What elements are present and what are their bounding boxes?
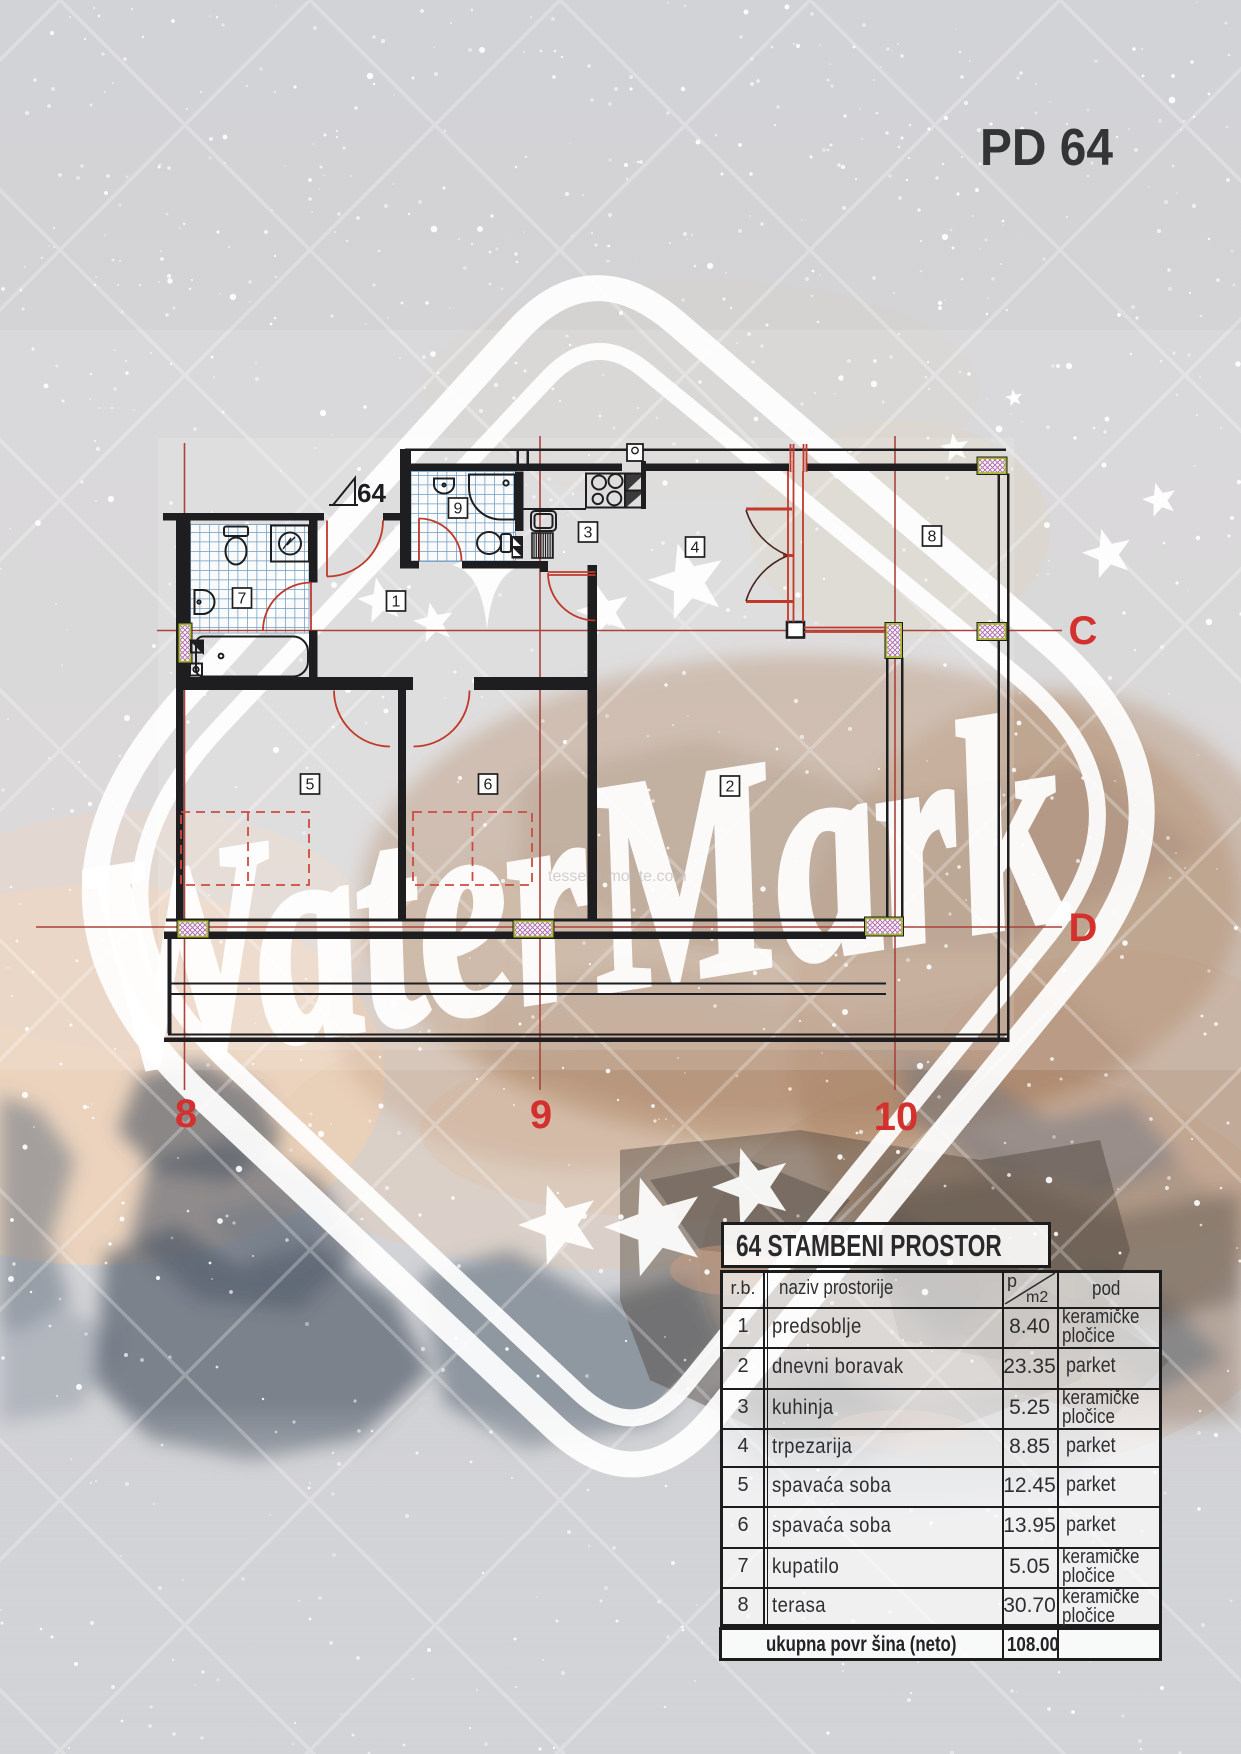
svg-text:9: 9 [530, 1093, 552, 1137]
svg-text:C: C [1069, 609, 1098, 653]
svg-text:10: 10 [874, 1095, 919, 1139]
svg-text:5: 5 [306, 777, 315, 794]
svg-text:7: 7 [238, 591, 247, 608]
svg-text:4: 4 [691, 540, 700, 557]
svg-text:6: 6 [484, 777, 493, 794]
svg-text:8: 8 [175, 1092, 197, 1136]
svg-text:8: 8 [928, 529, 937, 546]
svg-text:1: 1 [392, 594, 401, 611]
svg-text:64: 64 [357, 478, 386, 508]
svg-text:2: 2 [726, 779, 735, 796]
svg-text:3: 3 [584, 525, 593, 542]
svg-text:D: D [1069, 906, 1098, 950]
svg-text:9: 9 [454, 501, 463, 518]
